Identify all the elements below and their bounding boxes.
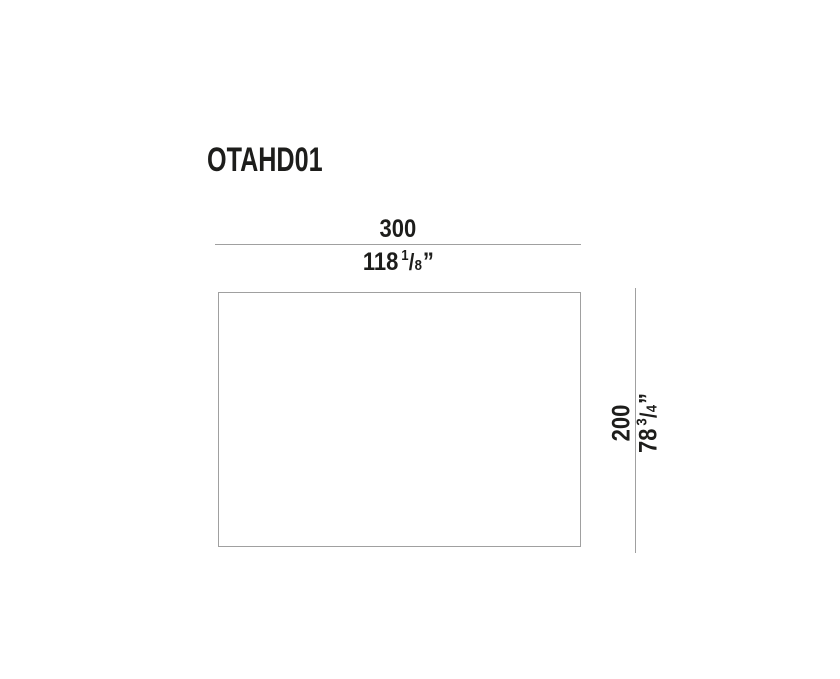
width-dimension-line [215, 244, 581, 245]
width-inch-whole: 118 [363, 248, 399, 276]
width-inch-frac-denominator: 8 [414, 257, 421, 274]
product-outline-rectangle [218, 292, 581, 547]
height-cm-value: 200 [610, 405, 635, 442]
height-cm-text: 200 [608, 405, 636, 442]
width-cm-text: 300 [380, 217, 417, 242]
width-inch-text: 1181/8” [363, 248, 434, 275]
width-inch-mark: ” [422, 248, 433, 276]
height-inch-whole: 78 [634, 429, 662, 453]
product-code-title: OTAHD01 [207, 143, 323, 177]
height-inch-value: 783/4” [635, 393, 662, 453]
height-inch-frac-denominator: 4 [643, 405, 660, 412]
height-inch-mark: ” [634, 393, 662, 404]
dimension-drawing-sheet: OTAHD01 300 1181/8” 200 783/4” [0, 0, 840, 679]
width-inch-frac-slash: / [408, 249, 414, 275]
height-inch-frac-slash: / [635, 412, 661, 418]
width-inch-frac-numerator: 1 [401, 247, 408, 264]
width-cm-value: 300 [215, 217, 581, 242]
height-inch-frac-numerator: 3 [634, 418, 651, 425]
width-inch-value: 1181/8” [215, 248, 581, 275]
width-dimension-group: 300 1181/8” [215, 217, 581, 275]
